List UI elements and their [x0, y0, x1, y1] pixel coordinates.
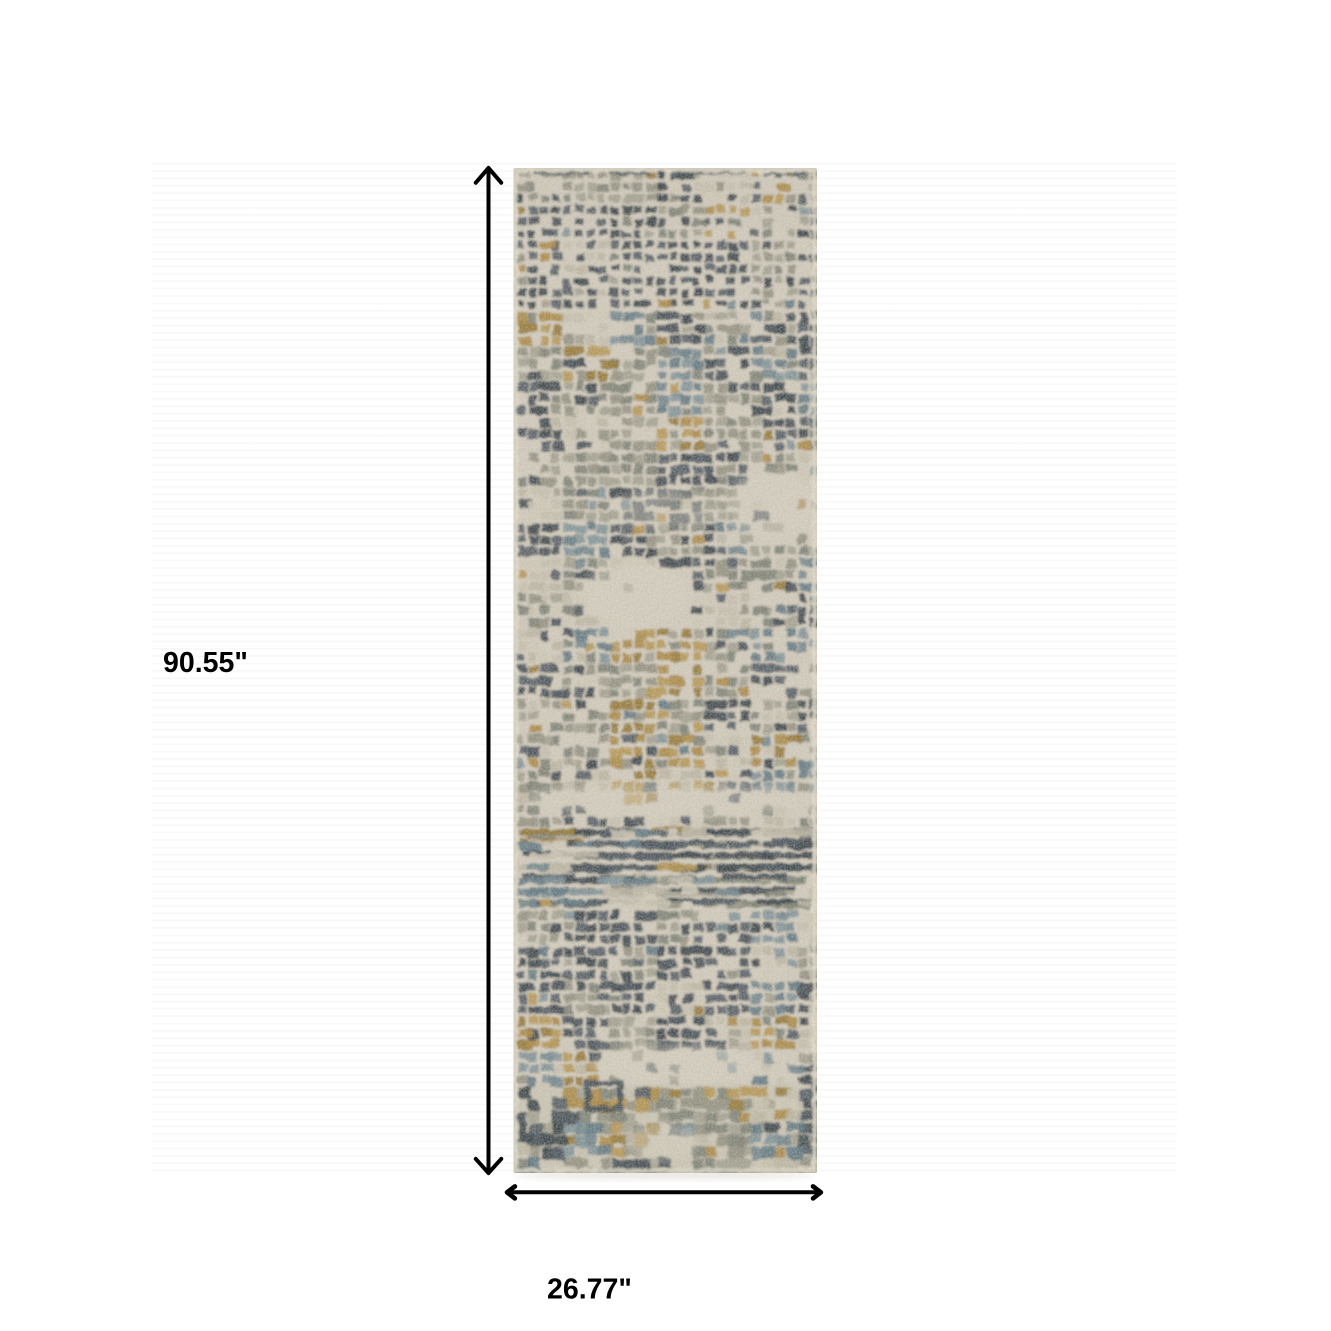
svg-text:90.55": 90.55"	[163, 647, 248, 679]
svg-text:26.77": 26.77"	[547, 1274, 632, 1306]
